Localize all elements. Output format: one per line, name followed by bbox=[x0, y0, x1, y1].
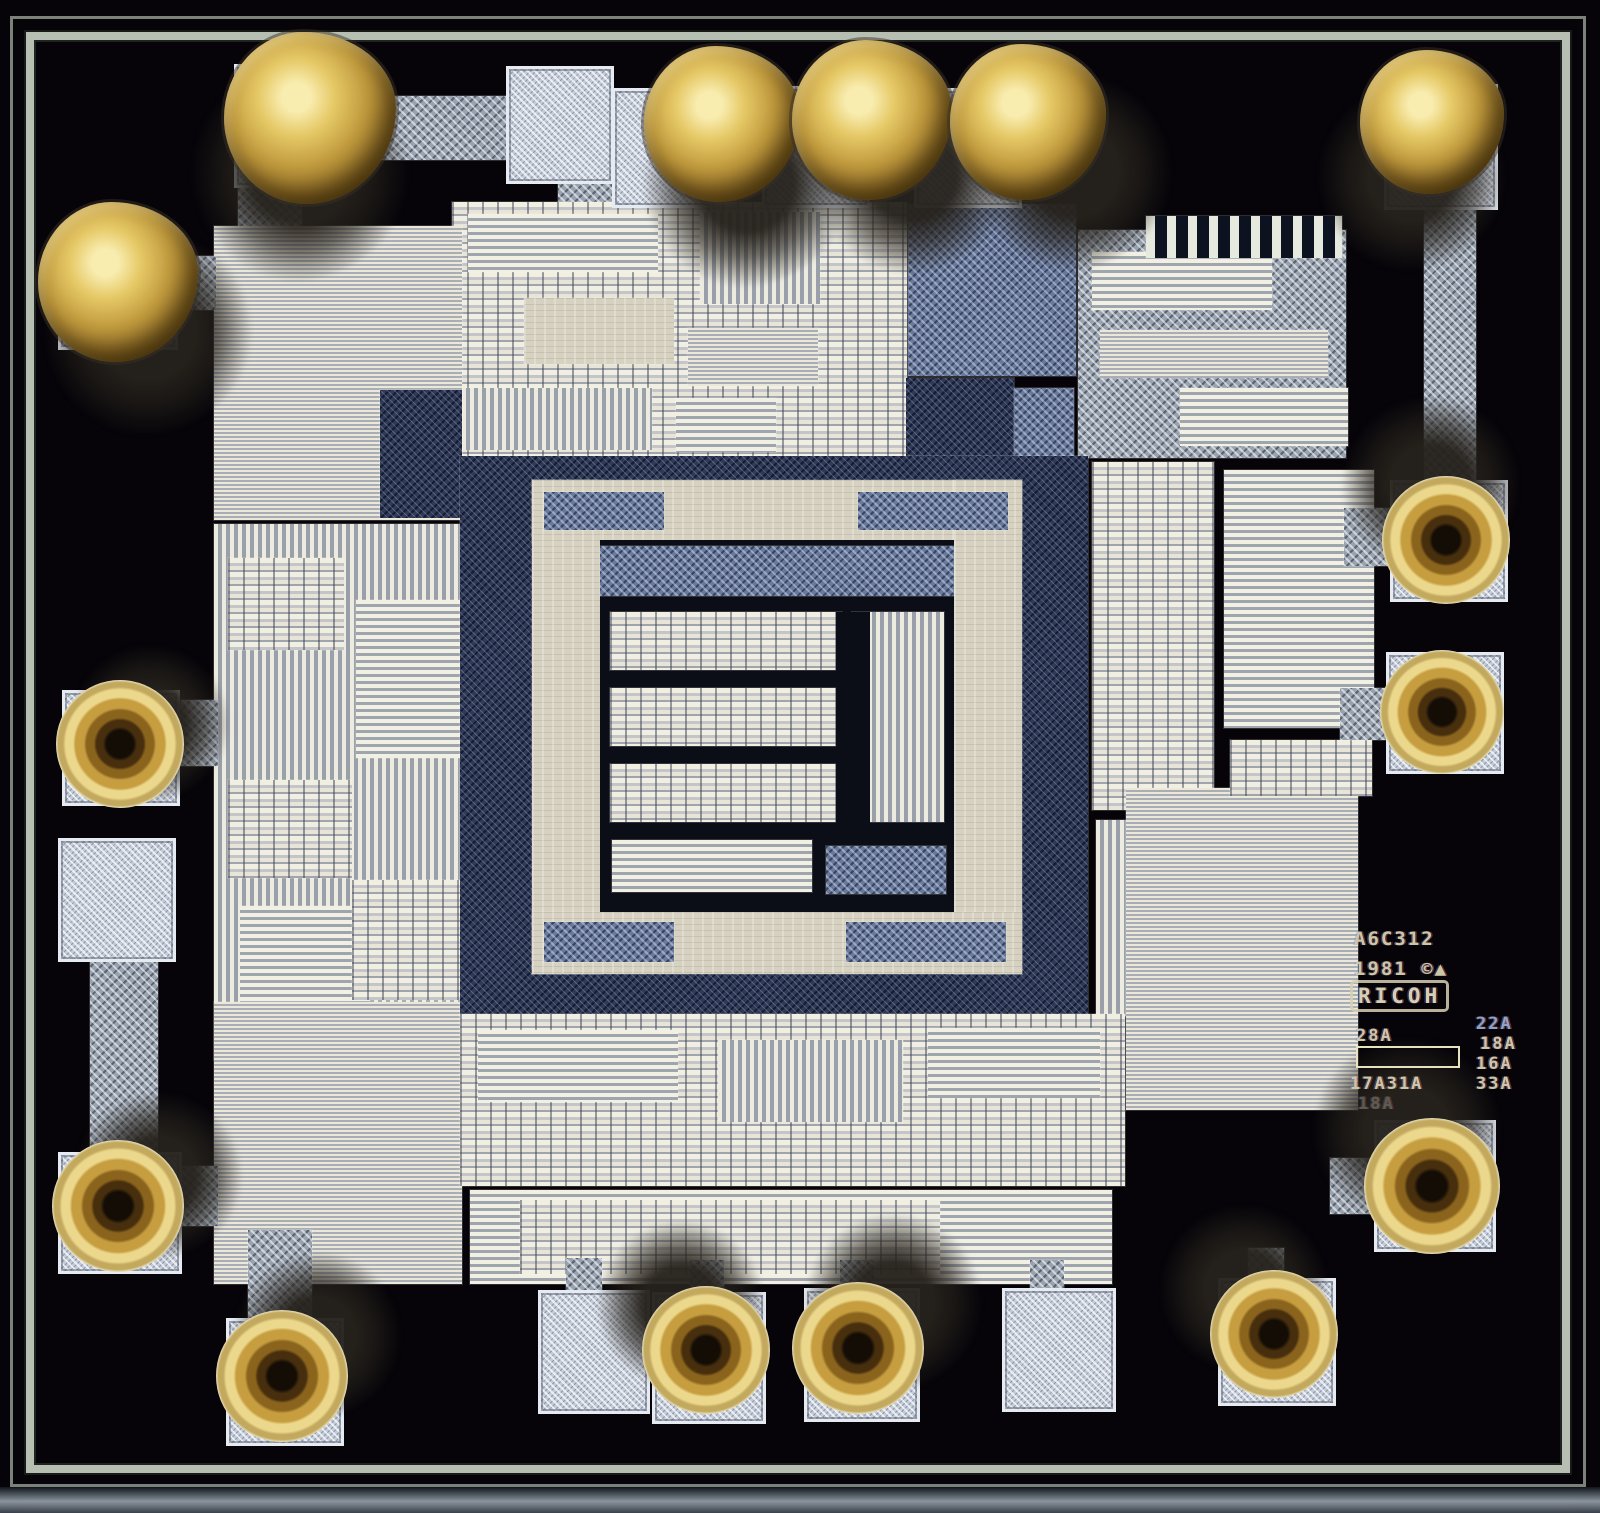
gold-bond-crater bbox=[216, 1310, 348, 1442]
gold-bond-crater bbox=[1382, 476, 1510, 604]
marking-rev-bottom-right: 33A bbox=[1476, 1074, 1513, 1094]
marking-rev-left-top: 28A bbox=[1356, 1026, 1393, 1046]
die-bottom-edge bbox=[0, 1487, 1600, 1513]
die-markings: A6C312 1981 ©▲ RICOH 28A 22A 18A 16A 17A… bbox=[1348, 908, 1558, 1123]
ic-die-photomicrograph: A6C312 1981 ©▲ RICOH 28A 22A 18A 16A 17A… bbox=[0, 0, 1600, 1513]
gold-bond-crater bbox=[1380, 650, 1504, 774]
marking-rev-right-1: 22A bbox=[1476, 1014, 1513, 1034]
gold-bond-crater bbox=[52, 1140, 184, 1272]
gold-bond-crater bbox=[56, 680, 184, 808]
marking-rev-faint: 18A bbox=[1358, 1094, 1395, 1114]
gold-bond-crater bbox=[1364, 1118, 1500, 1254]
marking-empty-box bbox=[1356, 1046, 1460, 1068]
gold-bond-crater bbox=[792, 1282, 924, 1414]
gold-bonds bbox=[0, 0, 1600, 1513]
marking-rev-right-3: 16A bbox=[1476, 1054, 1513, 1074]
marking-rev-bottom-left: 17A31A bbox=[1350, 1074, 1423, 1094]
gold-bond-crater bbox=[642, 1286, 770, 1414]
marking-rev-right-2: 18A bbox=[1480, 1034, 1517, 1054]
gold-bond-crater bbox=[1210, 1270, 1338, 1398]
marking-part-number: A6C312 bbox=[1354, 928, 1435, 950]
ricoh-logo: RICOH bbox=[1350, 980, 1449, 1012]
marking-copyright-year: 1981 ©▲ bbox=[1354, 958, 1448, 980]
